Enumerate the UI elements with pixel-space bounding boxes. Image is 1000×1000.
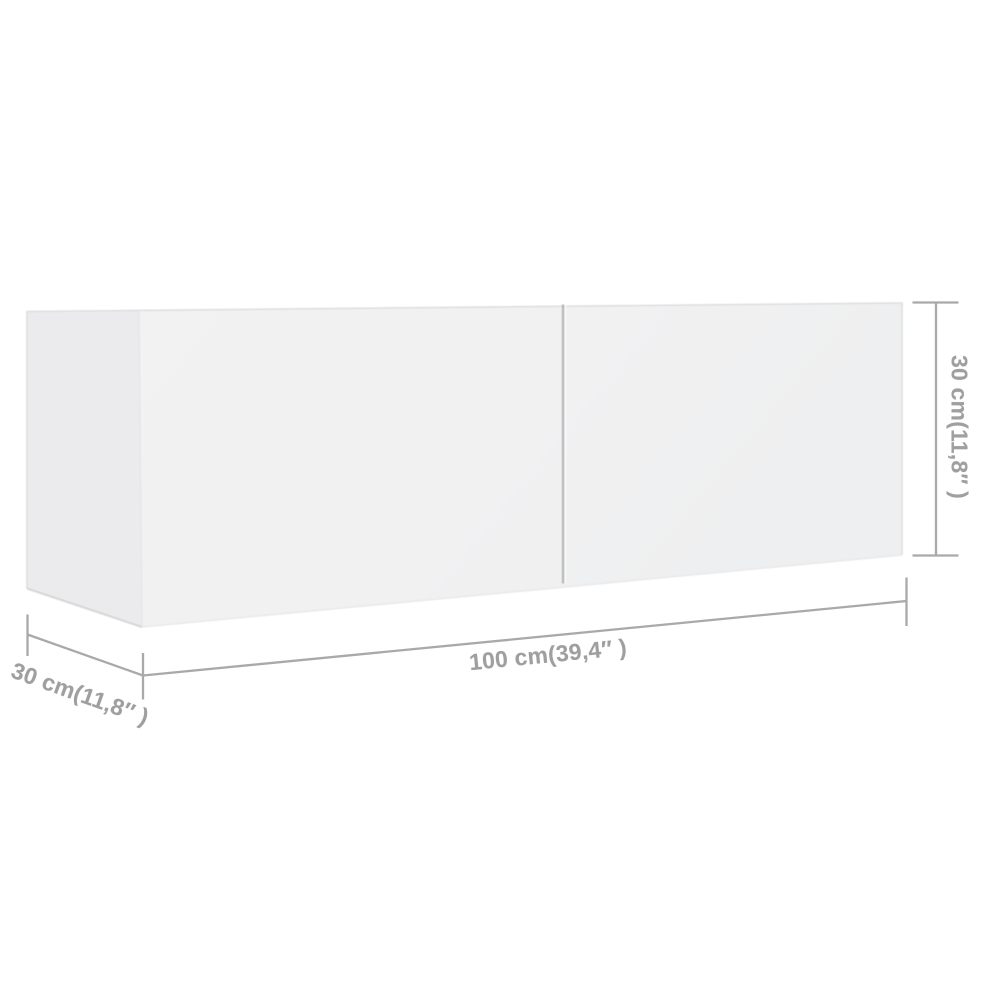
cabinet-front-face xyxy=(139,303,902,627)
height-dimension-label: 30 cm(11,8″ ) xyxy=(946,355,973,499)
cabinet-side-face xyxy=(27,310,142,627)
cabinet-diagram xyxy=(0,0,1000,1000)
product-dimension-image: 100 cm(39,4″ ) 30 cm(11,8″ ) 30 cm(11,8″… xyxy=(0,0,1000,1000)
cabinet-body xyxy=(27,303,902,627)
